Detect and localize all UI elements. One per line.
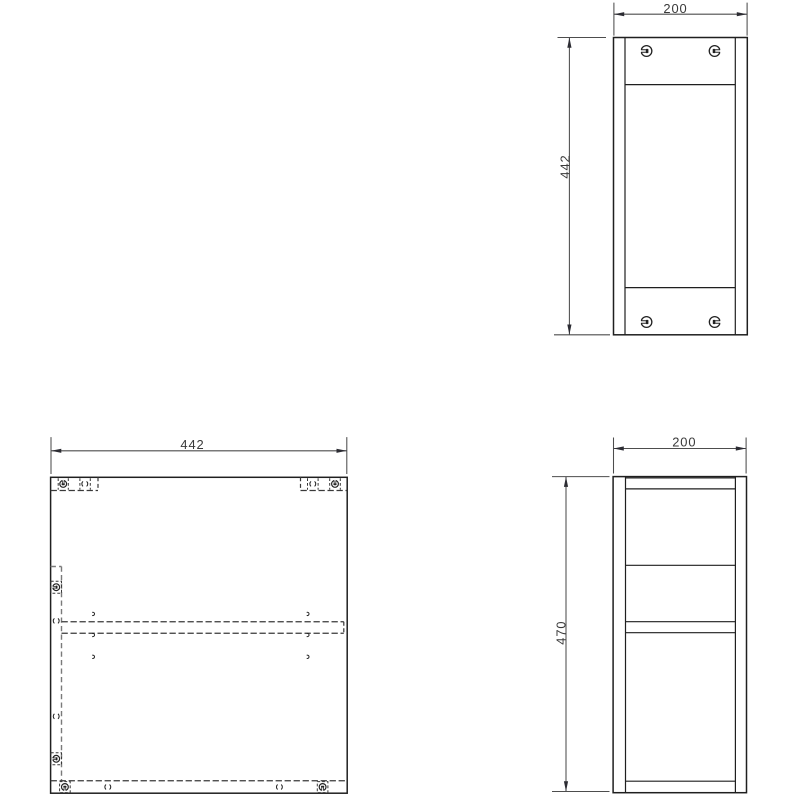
svg-text:200: 200: [663, 1, 687, 16]
svg-text:470: 470: [553, 620, 568, 644]
svg-text:442: 442: [557, 154, 572, 178]
svg-text:442: 442: [180, 437, 204, 452]
svg-text:200: 200: [672, 435, 696, 450]
